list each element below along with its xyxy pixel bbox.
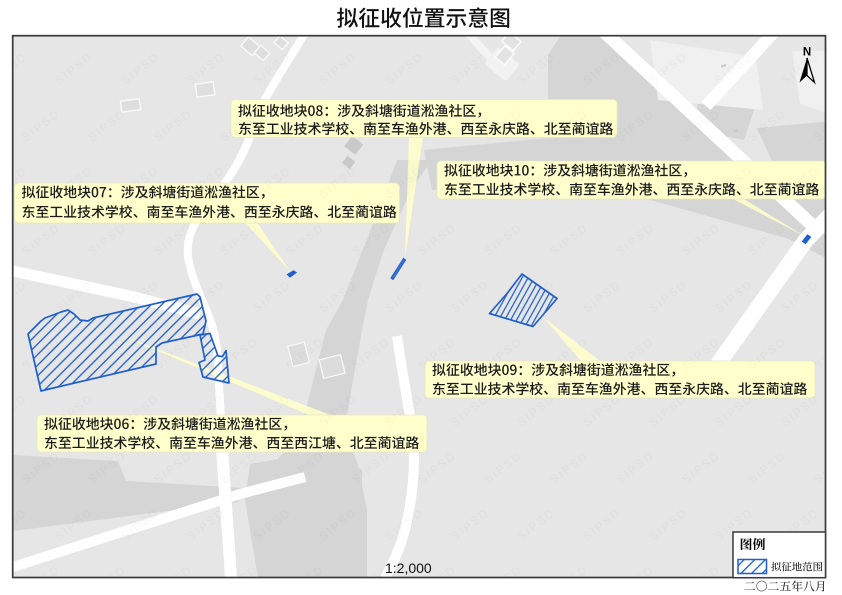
svg-text:N: N [803,47,811,59]
svg-text:1:2,000: 1:2,000 [385,560,432,576]
